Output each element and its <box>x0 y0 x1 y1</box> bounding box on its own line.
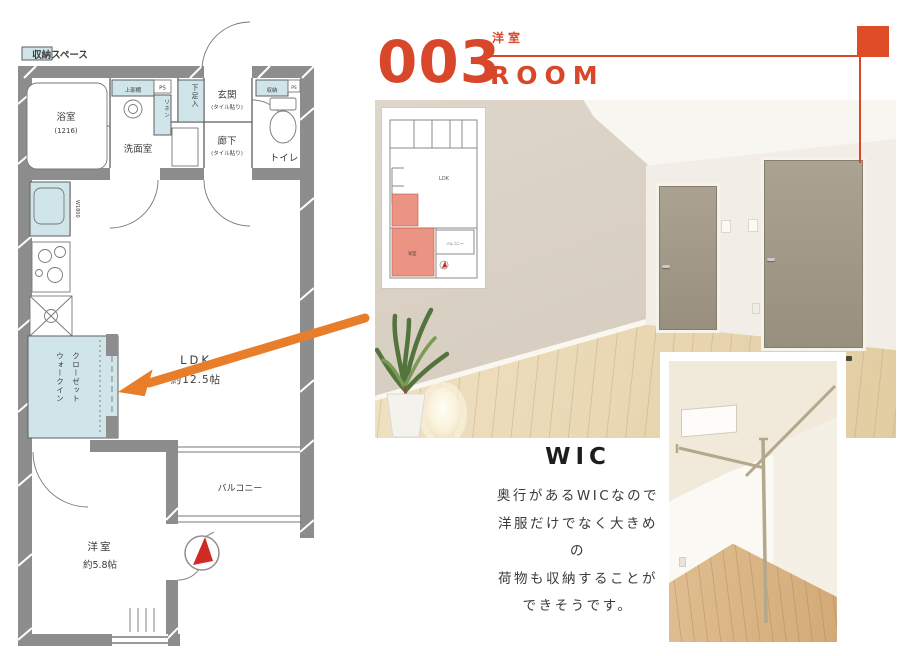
header-rule <box>490 55 858 57</box>
washroom-area: 上部棚 PS リネン 下足入 洗面室 <box>112 80 204 166</box>
hallway-label: 廊下 <box>217 135 236 147</box>
balcony-label: バルコニー <box>218 483 263 494</box>
pointer-arrow <box>95 300 385 412</box>
thumb-ldk-label: LDK <box>439 176 450 182</box>
plant-and-lamp <box>375 286 485 438</box>
ps-label-1: PS <box>159 86 166 92</box>
photo-door-left <box>659 186 716 330</box>
wic-line: 洋服だけでなく大きめの <box>492 511 664 566</box>
accent-square <box>857 26 889 57</box>
western-label: 洋室 <box>88 540 113 553</box>
storage-legend: 収納スペース <box>22 47 88 61</box>
linen-label: リネン <box>163 99 170 119</box>
compass-icon <box>185 532 219 570</box>
legend-label: 収納スペース <box>32 49 88 61</box>
washroom-label: 洗面室 <box>124 143 153 155</box>
bath-label: 浴室 <box>56 111 75 123</box>
kitchen-width-note: W1800 <box>74 200 80 218</box>
light-switch <box>748 219 758 232</box>
ps-label-2: PS <box>291 85 297 91</box>
wic-line: できそうです。 <box>492 593 664 621</box>
light-switch <box>721 220 731 233</box>
room-subtitle-jp: 洋室 <box>492 29 524 46</box>
wic-plan-label-1: ウォークイン <box>55 352 64 403</box>
toilet-label: トイレ <box>270 153 299 164</box>
flyer-page: 収納スペース <box>0 0 898 656</box>
entrance-label: 玄関 <box>217 89 236 101</box>
wic-photo-card <box>660 352 846 651</box>
wic-description: WIC 奥行があるWICなので 洋服だけでなく大きめの 荷物も収納することが で… <box>492 444 664 621</box>
room-title-en: ROOM <box>490 61 605 90</box>
wall-outlet <box>752 303 760 314</box>
thumb-western-label: 洋室 <box>408 250 417 257</box>
kitchen: W1800 <box>30 182 80 336</box>
thumb-balcony-label: バルコニー <box>446 242 464 246</box>
room-number: 003 <box>377 33 501 91</box>
balcony: バルコニー <box>218 483 263 494</box>
storage-label: 収納 <box>266 86 278 94</box>
door-stopper <box>846 356 852 361</box>
wic-plan-label-2: クローゼット <box>71 352 80 403</box>
wic-line: 奥行があるWICなので <box>492 483 664 511</box>
hallway-note: (タイル貼り) <box>211 149 243 157</box>
entrance-note: (タイル貼り) <box>211 103 243 111</box>
wic-title: WIC <box>492 444 664 470</box>
accent-vertical-line <box>859 57 861 163</box>
wic-hanger-rails <box>669 361 837 642</box>
photo-door-right <box>764 160 863 348</box>
floor-plan-thumbnail: LDK バルコニー 洋室 <box>382 108 485 288</box>
wic-photo <box>669 361 837 642</box>
western-size: 約5.8帖 <box>83 559 118 571</box>
shoe-label: 下足入 <box>191 84 199 108</box>
bath-size: (1216) <box>54 127 78 135</box>
bathroom: 浴室 (1216) <box>27 83 107 169</box>
western-room: 洋室 約5.8帖 <box>83 540 154 632</box>
upper-shelf-label: 上部棚 <box>125 86 142 94</box>
wic-line: 荷物も収納することが <box>492 566 664 594</box>
